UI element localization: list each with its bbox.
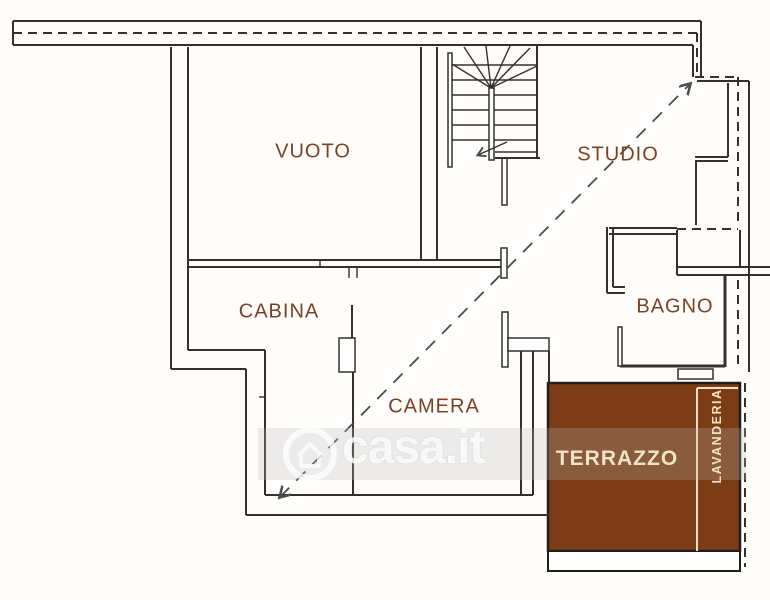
house-in-circle-icon: [280, 424, 340, 484]
staircase: [448, 45, 540, 167]
room-label-studio: STUDIO: [577, 144, 659, 167]
stair-winders: [452, 46, 537, 88]
room-label-camera: CAMERA: [388, 396, 480, 419]
room-label-terrazzo: TERRAZZO: [556, 447, 678, 471]
wall-bars: [339, 158, 713, 379]
room-label-vuoto: VUOTO: [275, 141, 351, 164]
room-label-bagno: BAGNO: [636, 296, 713, 319]
watermark-text: casa.it: [342, 420, 484, 475]
room-label-cabina: CABINA: [239, 301, 319, 324]
room-label-lavanderia: LAVANDERIA: [710, 388, 724, 483]
floor-plan: casa.it VUOTO STUDIO CABINA CAMERA BAGNO…: [0, 0, 770, 600]
